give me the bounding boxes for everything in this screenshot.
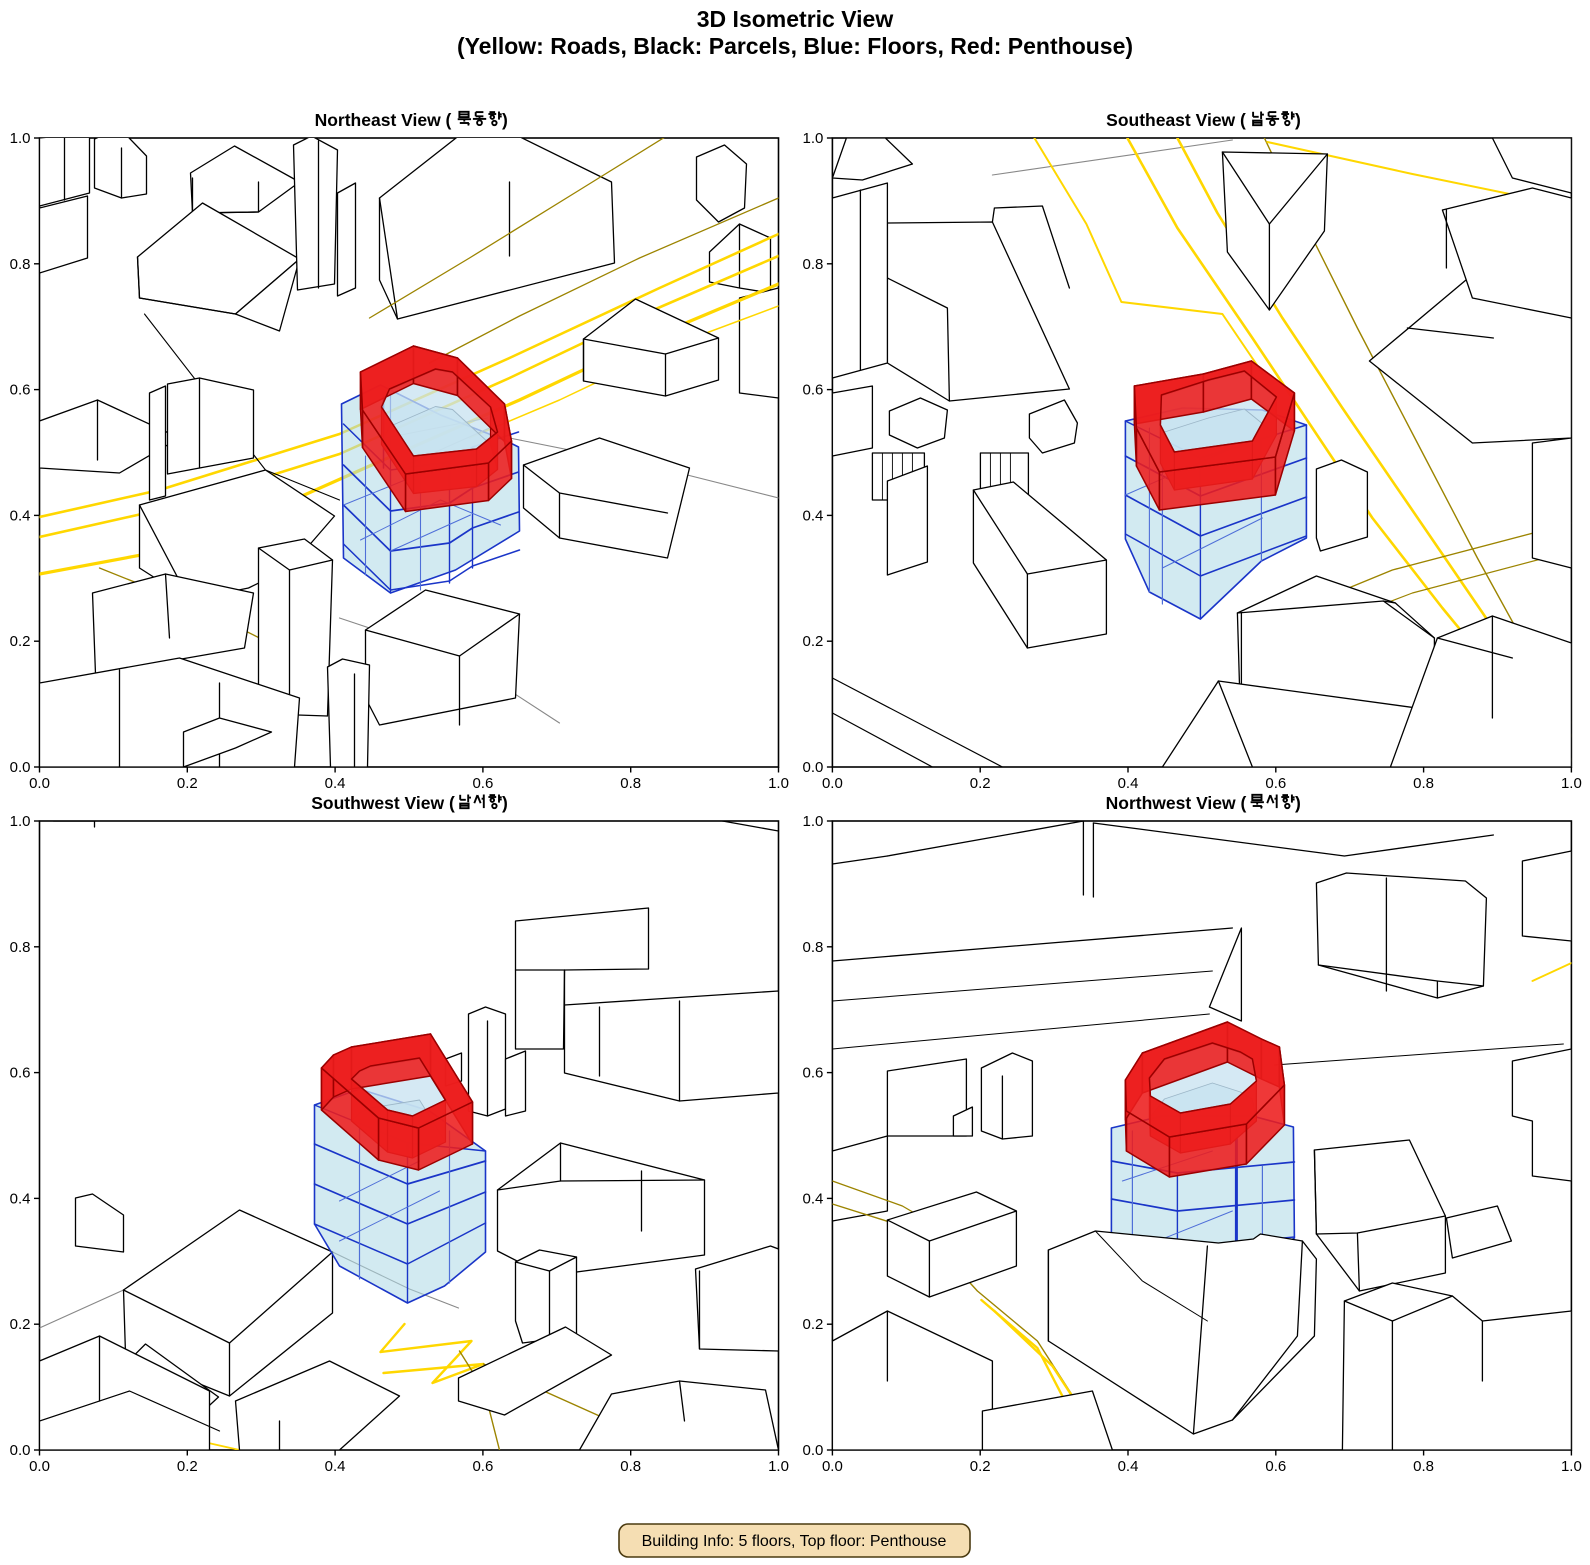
svg-text:): ) [1295,110,1301,130]
svg-text:0.4: 0.4 [325,775,346,792]
svg-text:1.0: 1.0 [1561,1458,1582,1475]
svg-text:1.0: 1.0 [803,813,824,830]
svg-text:0.4: 0.4 [1118,1458,1139,1475]
svg-text:0.0: 0.0 [10,1442,31,1459]
svg-text:0.2: 0.2 [10,1316,31,1333]
svg-text:): ) [502,793,508,813]
svg-text:0.8: 0.8 [803,256,824,273]
svg-text:0.4: 0.4 [803,507,824,524]
svg-text:Southeast View (: Southeast View ( [1106,110,1246,130]
svg-text:0.6: 0.6 [803,382,824,399]
svg-text:0.6: 0.6 [1265,1458,1286,1475]
svg-text:0.8: 0.8 [620,1458,641,1475]
svg-text:0.4: 0.4 [1118,775,1139,792]
svg-text:0.0: 0.0 [803,759,824,776]
svg-text:0.8: 0.8 [10,939,31,956]
svg-text:0.2: 0.2 [10,633,31,650]
svg-text:): ) [502,110,508,130]
svg-text:0.6: 0.6 [803,1065,824,1082]
svg-text:1.0: 1.0 [1561,775,1582,792]
svg-text:Southwest View (: Southwest View ( [311,793,455,813]
svg-text:0.4: 0.4 [10,507,31,524]
svg-text:0.8: 0.8 [803,939,824,956]
svg-text:0.6: 0.6 [472,775,493,792]
svg-text:1.0: 1.0 [803,130,824,147]
svg-text:1.0: 1.0 [10,813,31,830]
svg-text:1.0: 1.0 [768,1458,789,1475]
svg-text:0.2: 0.2 [803,1316,824,1333]
svg-text:0.0: 0.0 [803,1442,824,1459]
svg-text:0.2: 0.2 [177,775,198,792]
svg-text:0.0: 0.0 [10,759,31,776]
svg-text:Northeast View (: Northeast View ( [315,110,452,130]
svg-text:Building Info: 5 floors, Top f: Building Info: 5 floors, Top floor: Pent… [642,1533,947,1550]
svg-text:1.0: 1.0 [768,775,789,792]
svg-text:0.2: 0.2 [970,1458,991,1475]
svg-text:): ) [1295,793,1301,813]
svg-text:Northwest View (: Northwest View ( [1106,793,1247,813]
svg-text:0.6: 0.6 [472,1458,493,1475]
svg-text:0.8: 0.8 [1413,775,1434,792]
svg-text:0.6: 0.6 [10,382,31,399]
svg-text:0.0: 0.0 [822,1458,843,1475]
svg-text:0.0: 0.0 [29,1458,50,1475]
svg-text:0.0: 0.0 [29,775,50,792]
svg-text:1.0: 1.0 [10,130,31,147]
svg-text:0.8: 0.8 [1413,1458,1434,1475]
svg-text:0.4: 0.4 [10,1190,31,1207]
svg-text:3D Isometric View: 3D Isometric View [697,6,894,32]
svg-text:0.6: 0.6 [1265,775,1286,792]
svg-text:0.8: 0.8 [10,256,31,273]
svg-text:(Yellow: Roads, Black: Parcels: (Yellow: Roads, Black: Parcels, Blue: Fl… [457,33,1133,59]
svg-text:0.2: 0.2 [177,1458,198,1475]
svg-text:0.4: 0.4 [803,1190,824,1207]
svg-text:0.8: 0.8 [620,775,641,792]
svg-text:0.4: 0.4 [325,1458,346,1475]
svg-text:0.0: 0.0 [822,775,843,792]
svg-text:0.6: 0.6 [10,1065,31,1082]
svg-text:0.2: 0.2 [803,633,824,650]
svg-text:0.2: 0.2 [970,775,991,792]
